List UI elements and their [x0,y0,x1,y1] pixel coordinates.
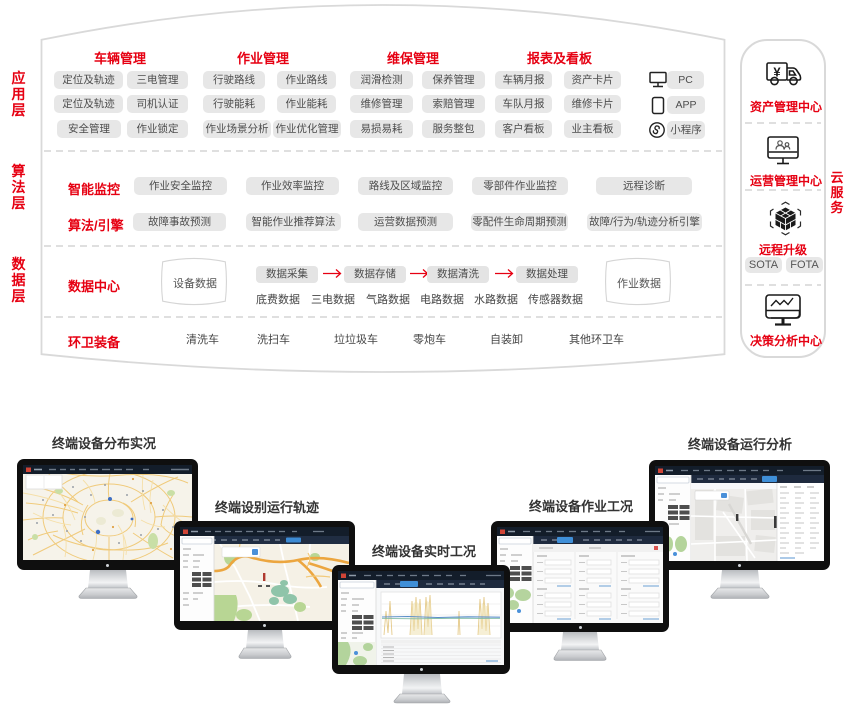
svg-text:¥: ¥ [773,65,781,80]
